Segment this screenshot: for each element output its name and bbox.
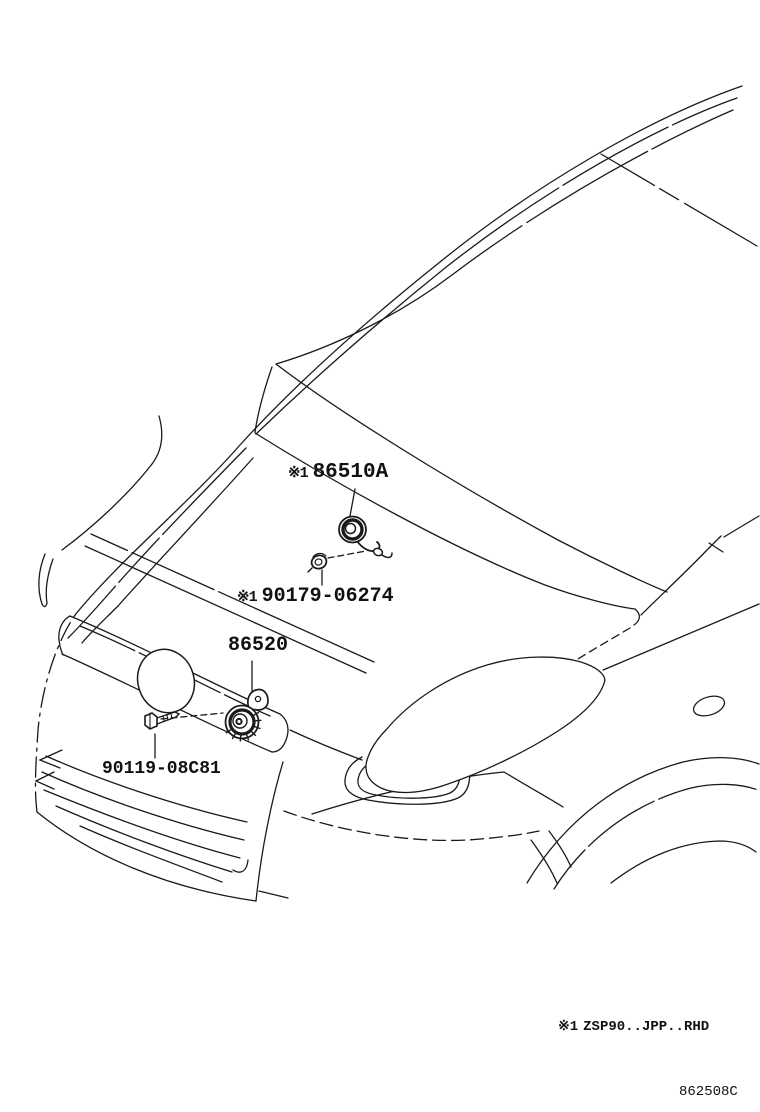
part-number-label: 86510A [313, 461, 389, 484]
callout-90179-06274[interactable]: ※1 90179-06274 [237, 585, 394, 608]
footnote-ref-mark: ※1 [288, 463, 308, 482]
leader-lines [155, 489, 366, 758]
footnote-ref-mark: ※1 [237, 587, 257, 606]
horn-86520-drawing [226, 690, 269, 741]
callout-86520[interactable]: 86520 [223, 634, 288, 657]
dashed-leader-90179 [328, 551, 366, 558]
parts-diagram-page: ※1 86510A ※1 90179-06274 86520 90119-08C… [0, 0, 760, 1112]
footnote-variant-note: ※1 ZSP90..JPP..RHD [558, 1018, 709, 1035]
leader-86510a [350, 489, 355, 516]
horn-86510a-drawing [339, 517, 392, 558]
figure-code: 862508C [679, 1084, 738, 1100]
part-number-label: 86520 [228, 634, 288, 657]
bolt-90179-drawing [308, 553, 328, 572]
callout-90119-08c81[interactable]: 90119-08C81 [97, 759, 221, 779]
part-number-label: 90119-08C81 [102, 759, 221, 779]
bolt-90119-drawing [145, 712, 179, 729]
footnote-text: ZSP90..JPP..RHD [583, 1019, 709, 1035]
callout-86510a[interactable]: ※1 86510A [288, 461, 388, 484]
car-horn-parts-diagram [0, 0, 760, 1112]
footnote-ref-mark: ※1 [558, 1018, 578, 1035]
part-number-label: 90179-06274 [262, 585, 394, 608]
